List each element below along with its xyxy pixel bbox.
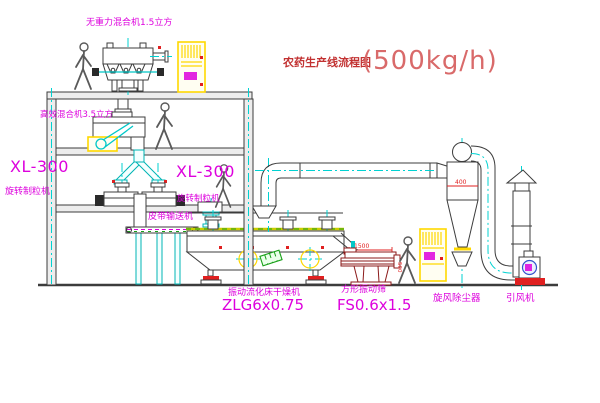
label-floor2-mixer: 高效混合机3.5立方 xyxy=(40,109,113,120)
cyclone-discharge xyxy=(452,252,472,266)
person-floor2 xyxy=(156,103,172,149)
label-sieve-name: 方形振动筛 xyxy=(341,283,386,295)
exhaust-hood xyxy=(252,206,276,218)
flow-diagram-canvas: 400 1500 xyxy=(0,0,600,403)
fluid-bed-dryer xyxy=(186,210,358,284)
y-split-pipe xyxy=(112,162,167,184)
control-cabinet-1 xyxy=(178,42,205,92)
mixer-discharge xyxy=(122,80,134,88)
mixer-body xyxy=(103,48,153,64)
sieve-base xyxy=(354,266,389,282)
label-top-mixer: 无重力混合机1.5立方 xyxy=(86,16,172,28)
mixer2-downpipe xyxy=(134,150,144,162)
sieve-deck xyxy=(341,258,398,266)
roof-slab xyxy=(47,92,252,99)
cyclone-cone xyxy=(447,200,478,247)
granulator-left-body xyxy=(104,192,138,206)
person-ground xyxy=(399,237,415,283)
cyclone-outlet-elbow xyxy=(453,143,472,162)
label-granulator-left-name: 旋转制粒机 xyxy=(5,185,50,197)
label-fan: 引风机 xyxy=(506,292,535,304)
cabinet-display xyxy=(184,72,197,80)
mixer2-body xyxy=(93,117,145,137)
label-granulator-left-model: XL-300 xyxy=(10,157,69,176)
label-sieve-model: FS0.6x1.5 xyxy=(337,296,411,314)
label-dryer-model: ZLG6x0.75 xyxy=(222,296,304,314)
sieve-upper-frame xyxy=(345,252,396,258)
vibrating-sieve: 1500 500 xyxy=(341,243,402,285)
sieve-height-dim: 500 xyxy=(396,262,402,273)
dryer-body xyxy=(187,231,344,252)
granulator-discharge-pipe xyxy=(134,194,146,230)
person-roof xyxy=(75,43,91,89)
label-granulator-right-model: XL-300 xyxy=(176,162,235,181)
dryer-feet xyxy=(201,270,326,284)
diagram-capacity: (500kg/h) xyxy=(362,46,498,76)
label-belt-conveyor: 皮带输送机 xyxy=(148,210,193,222)
granulator-right-body xyxy=(142,192,176,206)
cyclone-dimension: 400 xyxy=(455,179,467,186)
diagram-title: 农药生产线流程图 xyxy=(282,55,371,69)
label-granulator-right-name: 旋转制粒机 xyxy=(177,193,220,204)
cabinet2-display xyxy=(424,252,435,260)
floor2-slab xyxy=(47,148,252,155)
control-cabinet-2 xyxy=(420,229,446,281)
stack-cap xyxy=(507,170,536,183)
label-cyclone: 旋风除尘器 xyxy=(433,292,481,304)
gravity-free-mixer xyxy=(92,38,172,95)
fan-base xyxy=(515,278,545,285)
